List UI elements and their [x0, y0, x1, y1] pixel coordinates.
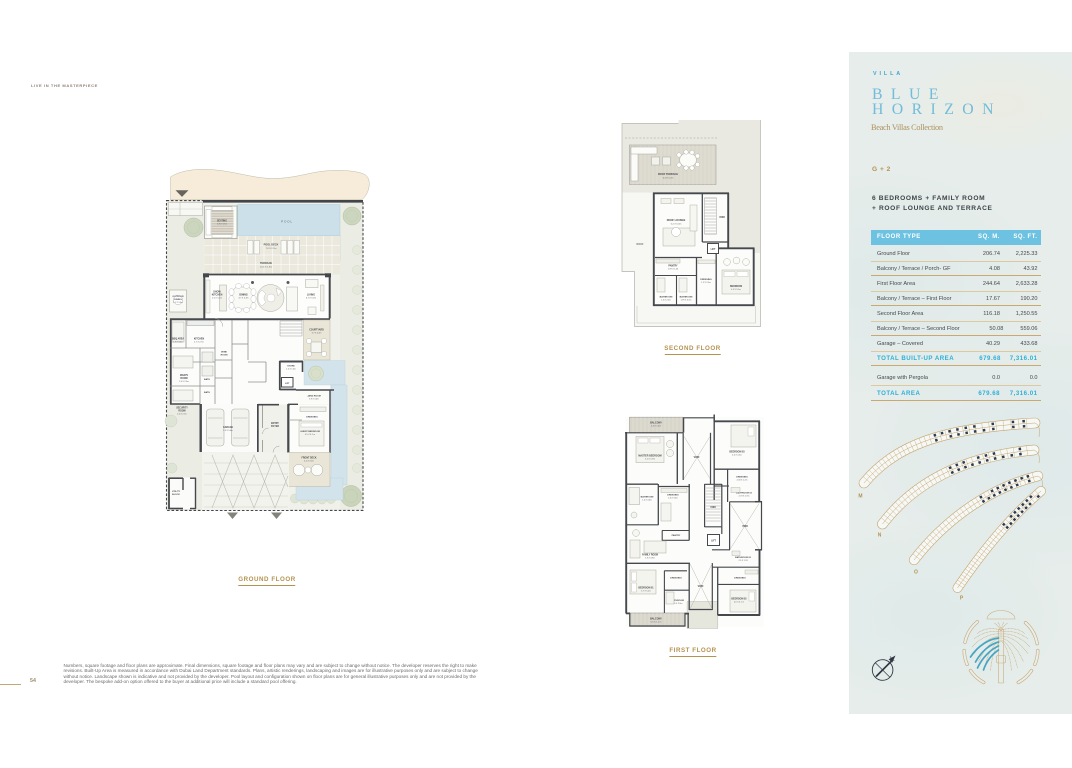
svg-text:LIFT: LIFT [711, 541, 716, 543]
svg-text:1.9 X 3.3m: 1.9 X 3.3m [173, 342, 183, 344]
svg-text:5.9 X 3.9m: 5.9 X 3.9m [645, 557, 655, 559]
svg-text:COURTYARD: COURTYARD [309, 329, 324, 332]
svg-text:2.0 X 2.1m: 2.0 X 2.1m [177, 414, 187, 416]
svg-text:5.6 X 1.1 m: 5.6 X 1.1 m [651, 622, 662, 624]
svg-text:VOID: VOID [710, 507, 716, 509]
svg-text:BATHROOM: BATHROOM [641, 496, 654, 499]
svg-text:DRESSING: DRESSING [734, 578, 746, 580]
svg-text:3.1 X 3.3m: 3.1 X 3.3m [173, 302, 183, 304]
svg-text:2.5 X 5.2m: 2.5 X 5.2m [212, 298, 222, 300]
svg-text:SECURITY: SECURITY [176, 408, 188, 410]
svg-text:5.2 X 5.9m: 5.2 X 5.9m [645, 459, 655, 461]
svg-text:4.5 X 4.1 m: 4.5 X 4.1 m [305, 434, 316, 436]
svg-text:VOID: VOID [719, 216, 725, 219]
svg-text:UTILITY: UTILITY [172, 491, 181, 493]
svg-text:ROOF TERRACE: ROOF TERRACE [658, 173, 678, 176]
svg-text:ROOF: ROOF [637, 243, 644, 246]
svg-text:4.0 X 4.2m: 4.0 X 4.2m [732, 454, 742, 456]
svg-text:5.9 X 5.6m: 5.9 X 5.6m [223, 430, 233, 432]
svg-text:P: P [960, 596, 964, 602]
svg-text:5.2 X 5.0m: 5.2 X 5.0m [671, 223, 682, 225]
svg-text:BATH: BATH [204, 391, 210, 394]
svg-text:VOID: VOID [698, 585, 704, 588]
svg-text:ROOM: ROOM [178, 411, 185, 413]
svg-text:BEDROOM 02: BEDROOM 02 [731, 599, 747, 601]
svg-text:FOYER: FOYER [271, 426, 279, 428]
svg-text:WINE: WINE [221, 352, 227, 354]
svg-text:BEDROOM 03: BEDROOM 03 [729, 452, 745, 454]
svg-text:1.4 X 4.6m: 1.4 X 4.6m [642, 499, 652, 501]
svg-text:DRESSING: DRESSING [670, 578, 682, 580]
svg-text:DINING: DINING [239, 294, 248, 297]
svg-text:5.4 X 1.4m: 5.4 X 1.4m [651, 426, 661, 428]
svg-text:JAND ROOM: JAND ROOM [307, 395, 321, 398]
svg-text:4.7 X 2.7m: 4.7 X 2.7m [194, 342, 204, 344]
svg-text:BLOCK: BLOCK [172, 494, 180, 496]
svg-text:BEDROOM 01: BEDROOM 01 [638, 588, 654, 590]
svg-text:N: N [878, 533, 882, 539]
svg-text:13.4 X 1.3m: 13.4 X 1.3m [260, 266, 272, 268]
svg-text:4.0 X 4.1 m: 4.0 X 4.1 m [734, 601, 745, 603]
svg-text:ROOM: ROOM [221, 355, 228, 357]
svg-text:DRESSING: DRESSING [306, 417, 318, 419]
svg-text:1.99 X 1.06: 1.99 X 1.06 [668, 268, 679, 270]
svg-text:POOL DECK: POOL DECK [264, 244, 279, 247]
svg-text:1.99 X 3.5m: 1.99 X 3.5m [681, 299, 692, 301]
svg-text:2.9 X 1.93: 2.9 X 1.93 [738, 560, 748, 562]
svg-text:FAMILY ROOM: FAMILY ROOM [642, 554, 658, 557]
svg-text:LIVING: LIVING [307, 294, 315, 297]
svg-text:2.33 X 1.2m: 2.33 X 1.2m [737, 479, 748, 481]
svg-text:3.7 X 4.3m: 3.7 X 4.3m [312, 333, 322, 335]
svg-text:STORE: STORE [287, 366, 295, 368]
svg-text:BEDROOM: BEDROOM [730, 286, 742, 288]
svg-text:1.5 X 1.0m: 1.5 X 1.0m [286, 368, 296, 370]
svg-text:KITCHEN: KITCHEN [194, 339, 205, 341]
svg-text:DRESSING: DRESSING [700, 279, 712, 281]
svg-text:PANTRY: PANTRY [668, 265, 678, 268]
svg-text:BATHROOM: BATHROOM [680, 296, 693, 299]
svg-text:3.7 X 5.3m: 3.7 X 5.3m [238, 298, 248, 300]
svg-text:KITCHEN: KITCHEN [212, 294, 223, 297]
svg-text:FRONT DECK: FRONT DECK [301, 458, 316, 460]
svg-text:6.7 X 5.3m: 6.7 X 5.3m [306, 298, 316, 300]
svg-text:2.0 X 2.5m: 2.0 X 2.5m [179, 381, 189, 383]
svg-text:TERRACE: TERRACE [260, 262, 272, 265]
svg-text:1.2 X 2.3m: 1.2 X 2.3m [701, 282, 711, 284]
svg-text:2.8 X 3.5m: 2.8 X 3.5m [217, 224, 227, 226]
svg-text:BATHROOM: BATHROOM [660, 296, 673, 299]
svg-text:MAID'S: MAID'S [180, 374, 188, 377]
svg-text:DINING: DINING [174, 299, 182, 301]
svg-text:2.6 X 3.3m: 2.6 X 3.3m [668, 497, 678, 499]
svg-text:2.73 X 1.9m: 2.73 X 1.9m [739, 495, 750, 497]
svg-text:GUEST BEDROOM: GUEST BEDROOM [300, 431, 320, 433]
svg-text:MASTER BEDROOM: MASTER BEDROOM [638, 455, 661, 458]
svg-text:PANTRY: PANTRY [672, 534, 681, 537]
svg-text:BALCONY: BALCONY [650, 422, 662, 425]
svg-text:VOID: VOID [694, 456, 700, 459]
svg-text:4.3 X 5.1m: 4.3 X 5.1m [731, 289, 741, 291]
svg-text:LIFT: LIFT [285, 383, 290, 385]
svg-text:ROOM: ROOM [180, 378, 187, 380]
svg-text:1.3 X 2.5m: 1.3 X 2.5m [661, 299, 671, 301]
svg-text:BBQ AREA: BBQ AREA [172, 338, 185, 341]
svg-text:GARAGE: GARAGE [223, 426, 234, 429]
svg-text:3.7 X 5.2m: 3.7 X 5.2m [641, 590, 651, 592]
svg-text:DRESSING: DRESSING [736, 477, 748, 479]
svg-text:SEATING: SEATING [217, 220, 227, 223]
svg-text:POOL: POOL [281, 220, 293, 224]
svg-text:BATH: BATH [204, 378, 210, 381]
svg-text:OUTDOOR: OUTDOOR [172, 296, 184, 298]
svg-text:LIFT: LIFT [711, 249, 716, 251]
svg-text:3.9 X 3.0m: 3.9 X 3.0m [309, 398, 319, 400]
svg-text:7.0 X 2.7m: 7.0 X 2.7m [266, 248, 277, 250]
svg-text:ROOF LOUNGE: ROOF LOUNGE [667, 219, 686, 222]
svg-text:DRESSING: DRESSING [667, 495, 679, 497]
svg-text:4.2 X 3.1m: 4.2 X 3.1m [304, 460, 314, 462]
svg-text:6.3 X 5.2m: 6.3 X 5.2m [663, 177, 674, 179]
svg-text:O: O [914, 570, 918, 576]
svg-text:M: M [858, 494, 862, 500]
svg-text:BALCONY: BALCONY [650, 618, 662, 621]
svg-text:VOID: VOID [742, 525, 748, 528]
svg-text:ENTRY: ENTRY [271, 423, 279, 425]
svg-text:BATHROOM 02: BATHROOM 02 [735, 556, 752, 559]
